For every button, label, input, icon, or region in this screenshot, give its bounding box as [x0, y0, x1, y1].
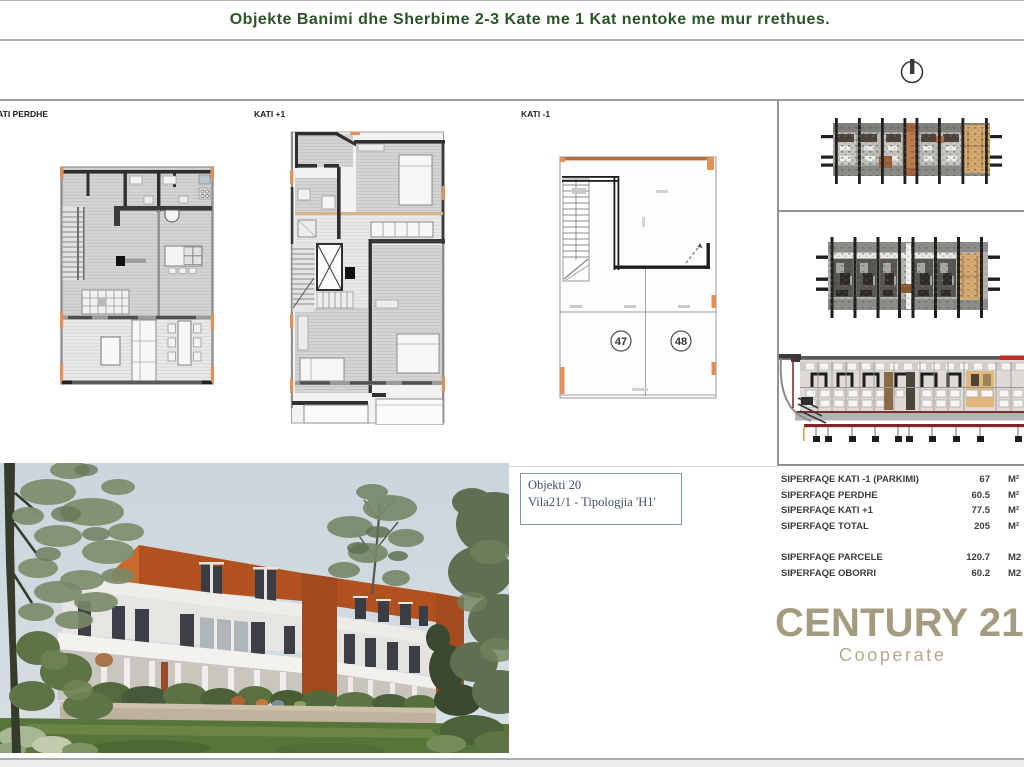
svg-text:48: 48: [675, 336, 687, 348]
svg-text:47: 47: [615, 336, 627, 348]
